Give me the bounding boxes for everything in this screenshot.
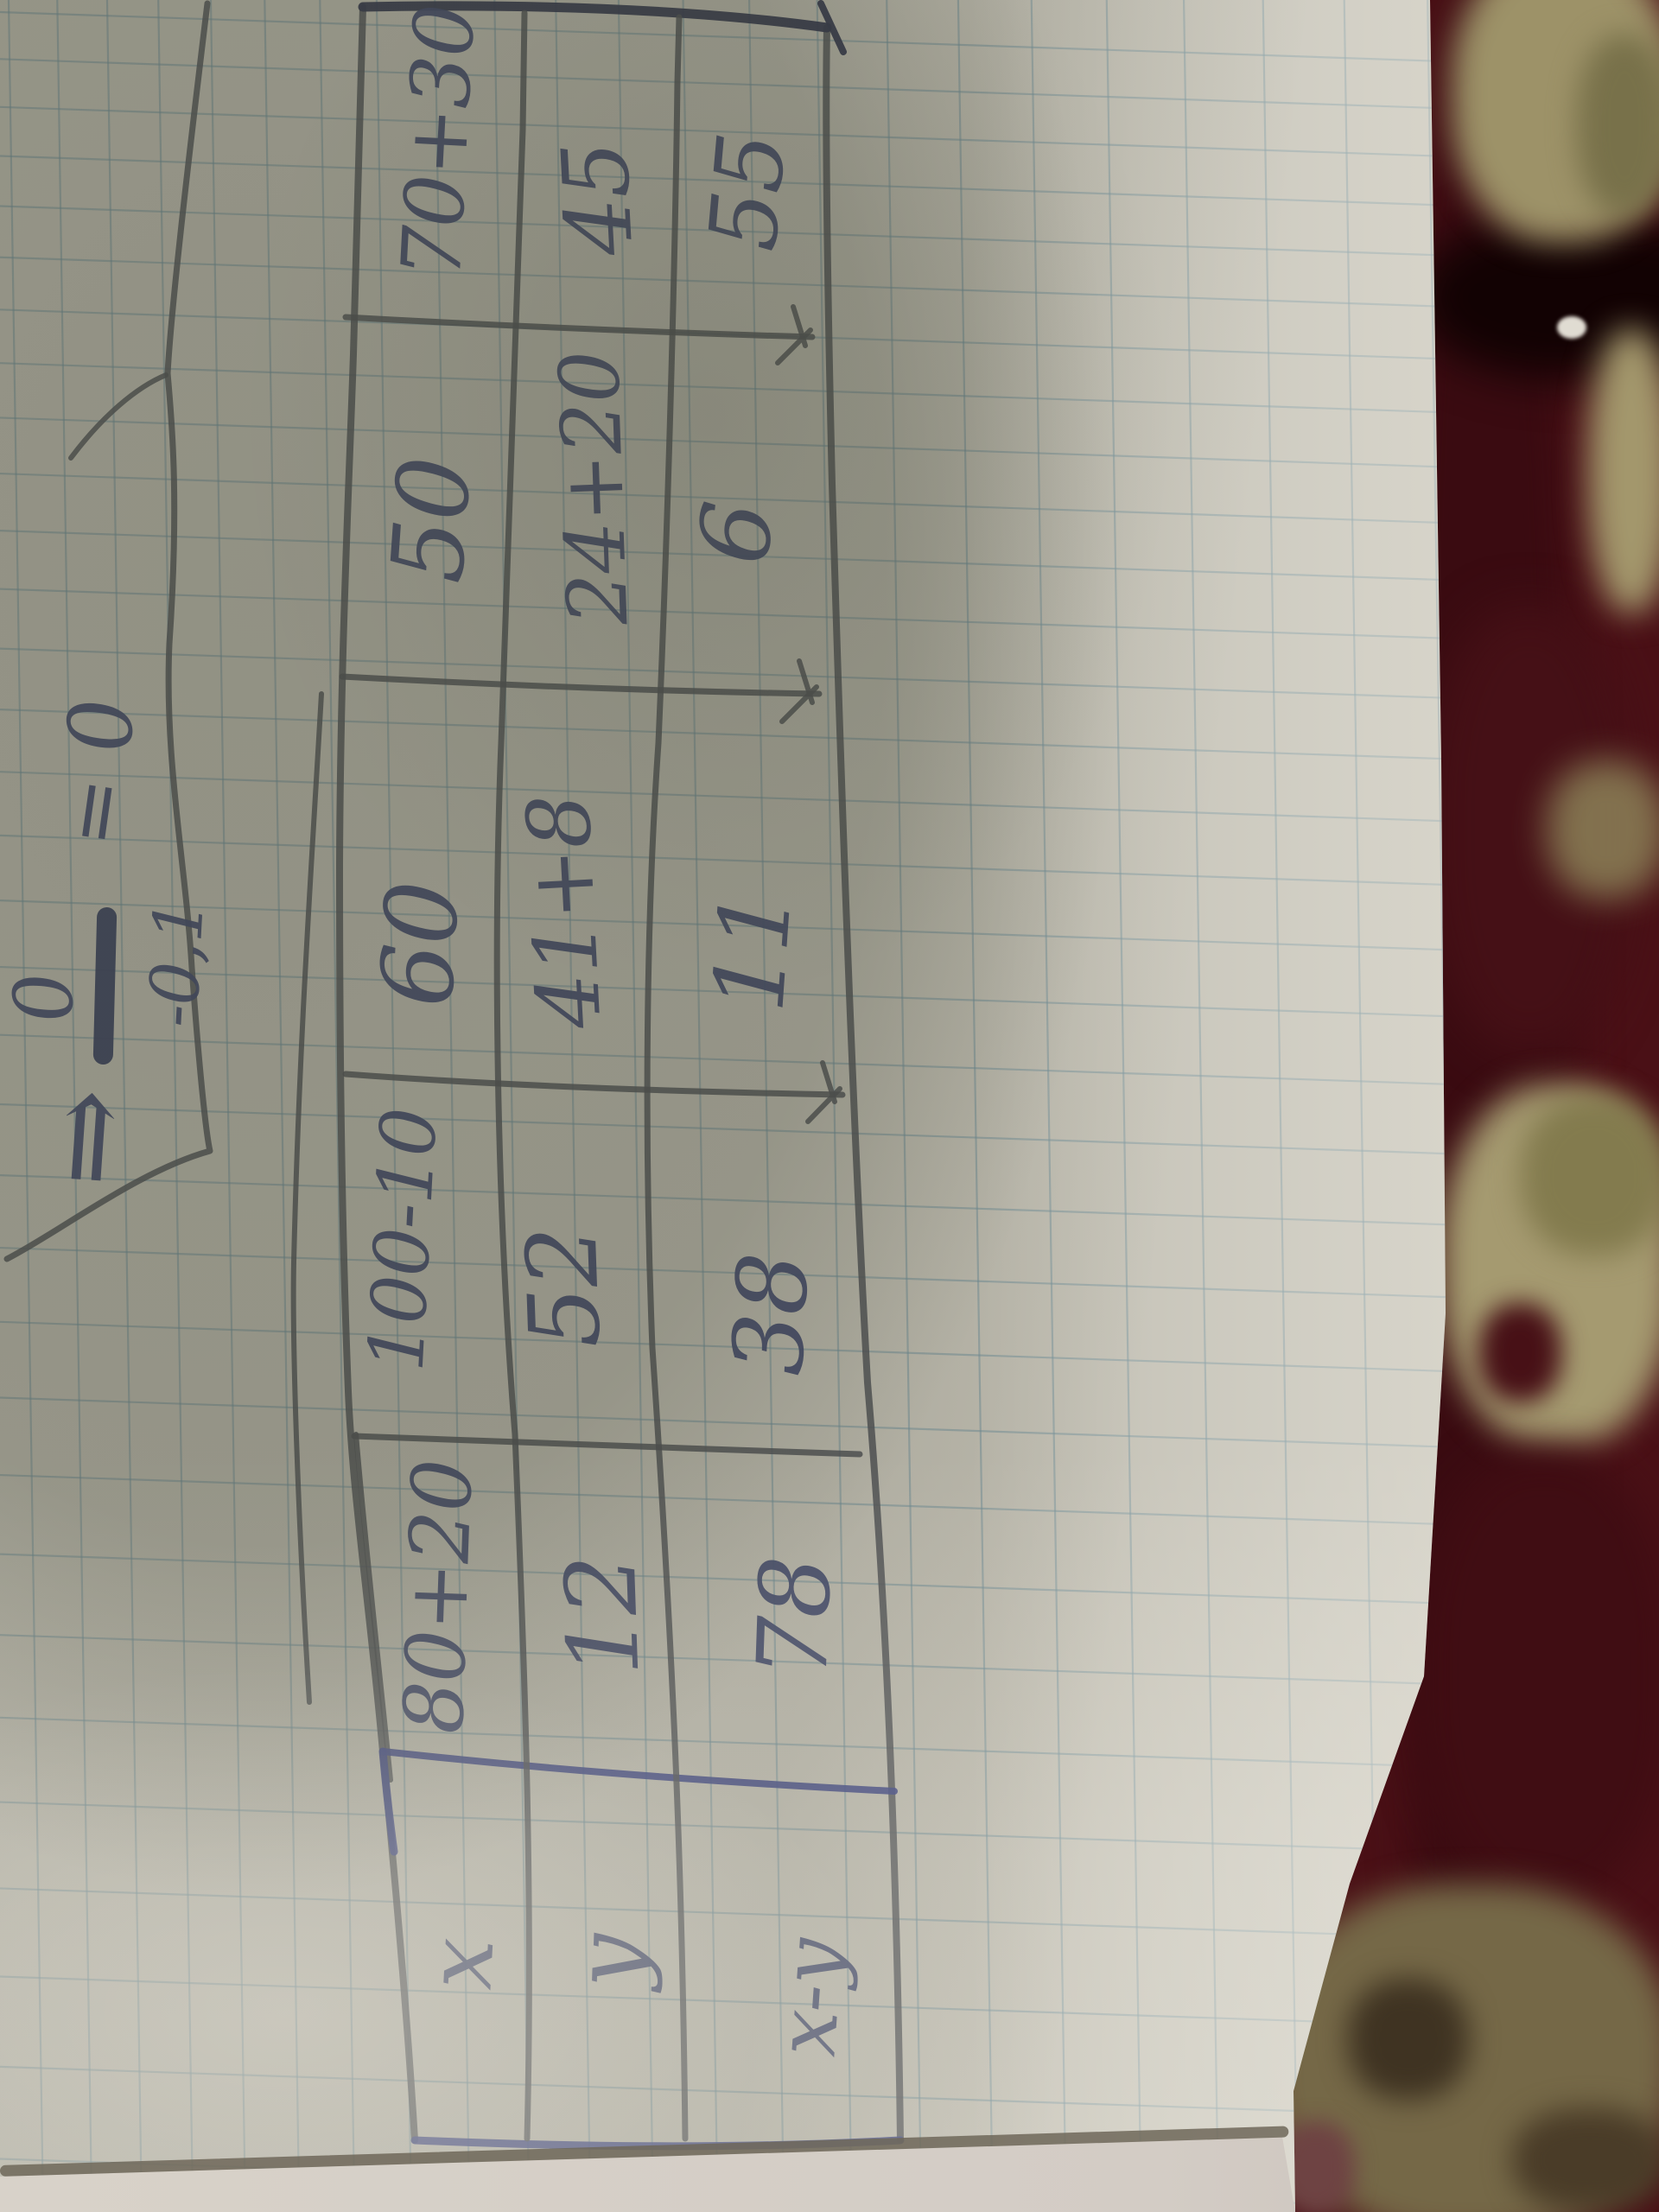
cell-y-col4: 24+20	[543, 350, 647, 626]
formula-result: 0	[48, 696, 153, 757]
carpet-brown-speck2	[1512, 2108, 1659, 2212]
formula-numerator: 0	[0, 969, 92, 1027]
cell-y-col1: 12	[545, 1554, 662, 1679]
cell-xy-col2: 38	[712, 1251, 830, 1378]
carpet-olive-top	[1577, 35, 1659, 216]
carpet-beige-speck	[1547, 760, 1659, 899]
carpet-brown-speck1	[1348, 1979, 1469, 2100]
cell-x-col5: 70+30	[385, 3, 493, 281]
cell-y-col3: 41+8	[507, 792, 620, 1031]
cell-xy-col5: 55	[690, 129, 807, 255]
cell-x-col3: 60	[359, 880, 481, 1010]
fraction-bar	[93, 907, 118, 1065]
carpet-olive-patch	[1521, 1096, 1659, 1255]
formula-equals: =	[43, 772, 147, 852]
handwritten-content: ⇒ 0 -0,1 = 0 x y x-y 80+20 12 78 100-10 …	[0, 0, 950, 2212]
cell-y-col2: 52	[506, 1225, 623, 1351]
carpet-beige-right	[1588, 328, 1659, 613]
cell-xy-col4: 6	[678, 497, 797, 569]
swoosh-line	[7, 3, 210, 1259]
photo-of-notebook-on-carpet: ⇒ 0 -0,1 = 0 x y x-y 80+20 12 78 100-10 …	[0, 0, 1659, 2212]
row-label-x: x	[407, 1936, 515, 1992]
row-label-x-minus-y: x-y	[759, 1936, 861, 2059]
formula-denominator: -0,1	[135, 898, 219, 1029]
carpet-dark-spot	[1479, 1303, 1561, 1402]
table-outer-border	[340, 3, 900, 2146]
cell-x-col2: 100-10	[352, 1106, 454, 1373]
cell-x-col4: 50	[370, 454, 494, 586]
stray-line	[294, 694, 321, 1702]
carpet-white-speck	[1557, 316, 1586, 339]
cell-y-col5: 45	[543, 139, 654, 258]
cell-x-col1: 80+20	[387, 1459, 492, 1735]
cell-xy-col3: 11	[693, 887, 813, 1015]
carpet-maroon-low	[1415, 1452, 1659, 1901]
cell-xy-col1: 78	[737, 1555, 854, 1681]
formula-arrow: ⇒	[16, 1085, 157, 1191]
row-label-y: y	[553, 1933, 665, 1989]
